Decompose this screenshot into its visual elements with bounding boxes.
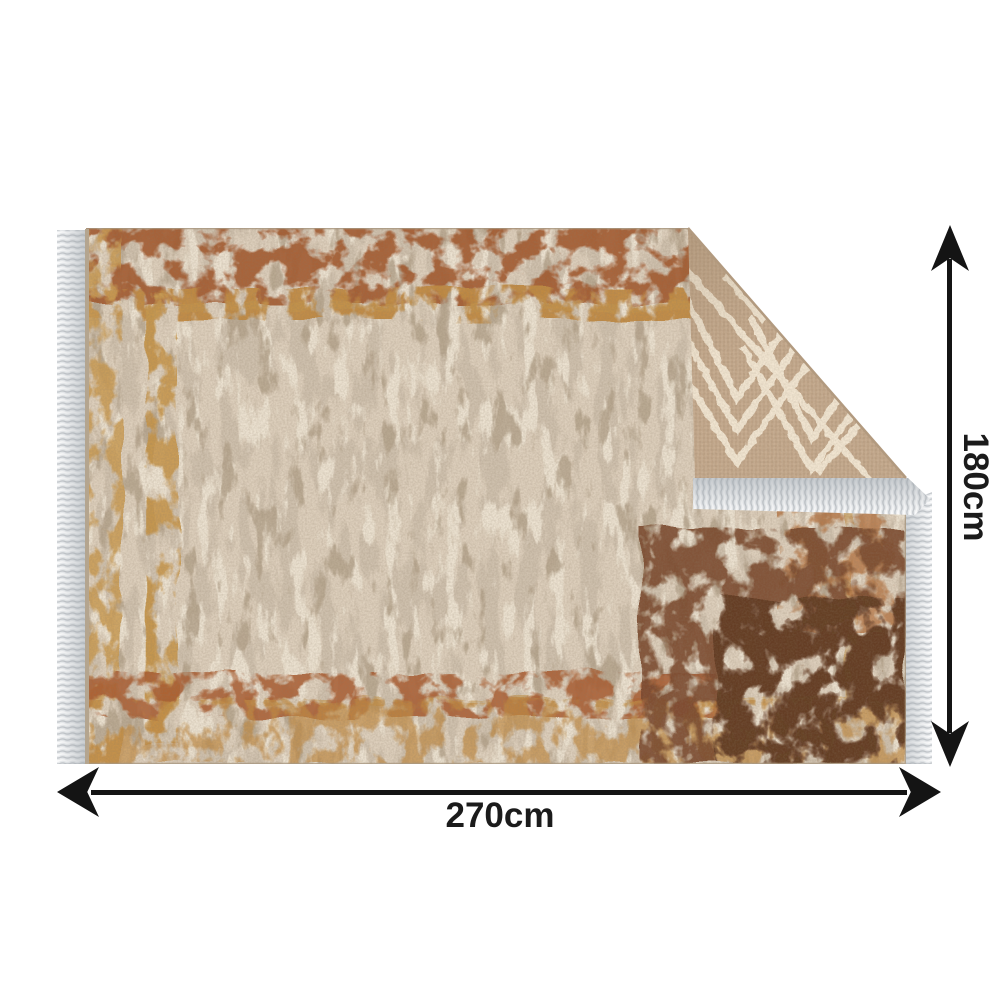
fold-fringe — [693, 478, 930, 515]
rug-image — [0, 0, 1000, 1000]
height-arrow-shaft — [947, 259, 952, 733]
fringe-left — [57, 229, 89, 764]
height-dimension-label: 180cm — [953, 422, 997, 552]
width-dimension-label: 270cm — [380, 794, 620, 838]
product-dimension-image: 270cm 180cm — [0, 0, 1000, 1000]
